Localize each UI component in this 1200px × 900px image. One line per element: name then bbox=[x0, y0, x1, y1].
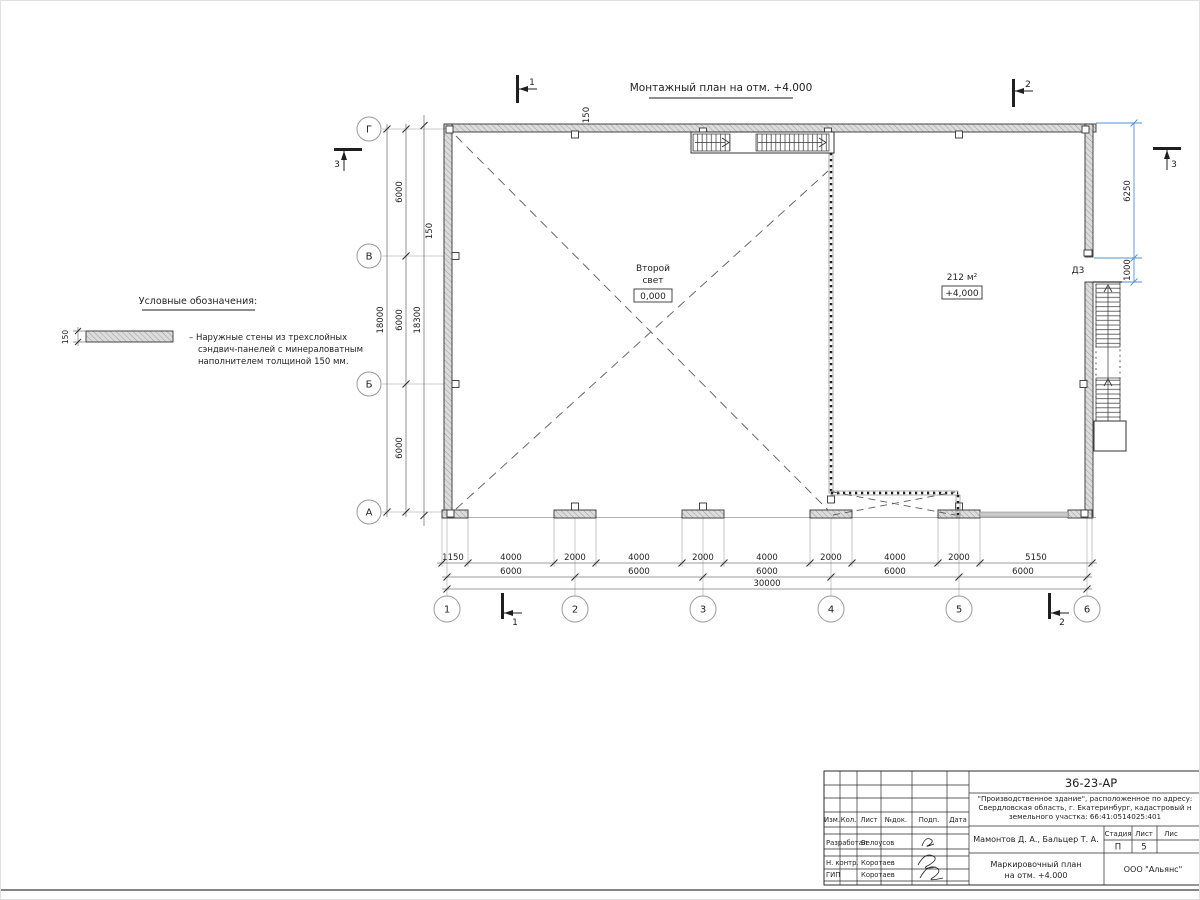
tb-role: Н. контр. bbox=[826, 859, 859, 867]
dim-label: 2000 bbox=[564, 553, 586, 563]
legend: Условные обозначения: 150 – Наружные сте… bbox=[61, 296, 363, 367]
axis-row-label: Г bbox=[366, 125, 372, 136]
dim-label-total: 30000 bbox=[753, 579, 780, 589]
tb-name: Коротаев bbox=[861, 871, 895, 879]
axis-bubbles bbox=[357, 117, 1100, 622]
tb-authors: Мамонтов Д. А., Бальцер Т. А. bbox=[973, 835, 1098, 844]
dim-label: 4000 bbox=[884, 553, 906, 563]
dim-label-total: 18000 bbox=[376, 306, 386, 333]
axis-col-label: 2 bbox=[572, 605, 578, 616]
dim-label: 6000 bbox=[395, 309, 405, 331]
dim-label-blue: 1000 bbox=[1123, 259, 1133, 281]
tb-sheet-value: 5 bbox=[1141, 843, 1146, 853]
axis-col-label: 4 bbox=[828, 605, 834, 616]
void-cross bbox=[456, 136, 828, 510]
axis-row-label: В bbox=[366, 252, 373, 263]
wall-top bbox=[444, 124, 1096, 132]
dim-label: 2000 bbox=[948, 553, 970, 563]
tb-address: Свердловская область, г. Екатеринбург, к… bbox=[978, 803, 1191, 812]
blue-dimension bbox=[1094, 120, 1142, 286]
legend-line: сэндвич-панелей с минераловатным bbox=[198, 345, 363, 355]
section-number: 1 bbox=[512, 618, 518, 628]
tb-drawing-title: на отм. +4.000 bbox=[1005, 871, 1068, 880]
annotations: Монтажный план на отм. +4.000 Второй све… bbox=[630, 82, 1085, 302]
dim-label: 5150 bbox=[1025, 553, 1047, 563]
tb-name: Коротаев bbox=[861, 859, 895, 867]
wall-bottom-pier bbox=[442, 510, 468, 518]
section-marks: 1 2 1 2 3 3 bbox=[334, 75, 1181, 628]
section-number: 3 bbox=[1171, 160, 1177, 170]
door-label: Д3 bbox=[1072, 266, 1085, 276]
tb-address: "Производственное здание", расположенное… bbox=[978, 794, 1193, 803]
wall-thickness-label: 150 bbox=[582, 107, 592, 123]
axis-labels: Г В Б А 1 2 3 4 5 6 bbox=[366, 125, 1091, 616]
walls bbox=[442, 124, 1096, 518]
dim-label: 2000 bbox=[820, 553, 842, 563]
tb-header-col: Лист bbox=[860, 816, 877, 824]
section-number: 2 bbox=[1059, 618, 1065, 628]
opening-cross bbox=[833, 492, 955, 515]
dim-label: 4000 bbox=[500, 553, 522, 563]
stair-landing bbox=[1094, 421, 1126, 451]
room-left-label: Второй bbox=[636, 264, 670, 274]
tb-stage-header: Лис bbox=[1164, 830, 1178, 838]
dim-label: 6000 bbox=[756, 567, 778, 577]
axis-row-label: А bbox=[366, 508, 373, 519]
wall-left bbox=[444, 124, 452, 518]
section-number: 3 bbox=[334, 160, 340, 170]
mezzanine-walls bbox=[829, 153, 960, 517]
dimension-ticks bbox=[384, 122, 1096, 593]
wall-bottom-pier bbox=[554, 510, 596, 518]
axis-col-label: 1 bbox=[444, 605, 450, 616]
legend-line: наполнителем толщиной 150 мм. bbox=[198, 357, 349, 367]
dim-label: 1150 bbox=[442, 553, 464, 563]
axis-col-label: 3 bbox=[700, 605, 706, 616]
wall-right-lower bbox=[1085, 282, 1093, 518]
dim-label: 4000 bbox=[756, 553, 778, 563]
tb-header-col: №док. bbox=[884, 816, 907, 824]
drawing-sheet: Г В Б А 1 2 3 4 5 6 1150 4000 2000 4000 … bbox=[0, 0, 1200, 900]
axis-col-label: 5 bbox=[956, 605, 962, 616]
tb-drawing-title: Маркировочный план bbox=[991, 860, 1082, 869]
wall-bottom-band bbox=[980, 512, 1068, 517]
dimension-lines bbox=[387, 115, 1097, 589]
title-block: Изм. Кол. Лист №док. Подп. Дата Разработ… bbox=[824, 771, 1200, 885]
tb-company: ООО "Альянс" bbox=[1124, 865, 1183, 874]
room-right-level: +4,000 bbox=[945, 289, 979, 299]
stair-right bbox=[1093, 282, 1126, 451]
tb-header-col: Дата bbox=[949, 816, 967, 824]
tb-header-col: Подп. bbox=[919, 816, 940, 824]
legend-line: – Наружные стены из трехслойных bbox=[189, 333, 347, 343]
legend-wall-symbol bbox=[86, 331, 173, 342]
tb-stage-header: Стадия bbox=[1105, 830, 1132, 838]
wall-thickness-label: 150 bbox=[425, 223, 435, 239]
axis-col-label: 6 bbox=[1084, 605, 1090, 616]
tb-signatures bbox=[918, 839, 943, 880]
plan-canvas: Г В Б А 1 2 3 4 5 6 1150 4000 2000 4000 … bbox=[1, 1, 1200, 900]
dim-label: 4000 bbox=[628, 553, 650, 563]
wall-bottom-pier bbox=[682, 510, 724, 518]
tb-address: земельного участка: 66:41:0514025:401 bbox=[1009, 812, 1161, 821]
wall-end-cap bbox=[1084, 250, 1092, 256]
dim-label: 6000 bbox=[395, 181, 405, 203]
room-right-area: 212 м² bbox=[947, 273, 978, 283]
tb-stage-header: Лист bbox=[1135, 830, 1153, 838]
section-number: 2 bbox=[1025, 80, 1031, 90]
room-left-label: свет bbox=[642, 276, 663, 286]
tb-stage-value: П bbox=[1115, 843, 1121, 853]
tb-header-col: Изм. bbox=[824, 816, 840, 824]
dim-label: 6000 bbox=[395, 437, 405, 459]
dim-label: 6000 bbox=[500, 567, 522, 577]
tb-doc-number: 36-23-АР bbox=[1065, 776, 1117, 790]
tb-header-col: Кол. bbox=[841, 816, 857, 824]
stair-top bbox=[691, 132, 834, 153]
dim-label: 2000 bbox=[692, 553, 714, 563]
wall-right-upper bbox=[1085, 124, 1093, 257]
columns bbox=[446, 126, 1092, 517]
section-number: 1 bbox=[529, 78, 535, 88]
axis-row-label: Б bbox=[366, 380, 373, 391]
dim-label: 6000 bbox=[1012, 567, 1034, 577]
wall-bottom-pier bbox=[810, 510, 852, 518]
dim-label: 6000 bbox=[628, 567, 650, 577]
grid-extension-lines bbox=[382, 129, 1092, 596]
legend-thickness: 150 bbox=[61, 330, 70, 345]
tb-name: Белоусов bbox=[861, 839, 894, 847]
dim-label-blue: 6250 bbox=[1123, 180, 1133, 202]
plan-title: Монтажный план на отм. +4.000 bbox=[630, 82, 813, 94]
dim-label-total: 18300 bbox=[413, 306, 423, 333]
room-left-level: 0,000 bbox=[640, 292, 666, 302]
legend-title: Условные обозначения: bbox=[139, 296, 257, 307]
dim-label: 6000 bbox=[884, 567, 906, 577]
tb-role: ГИП bbox=[826, 871, 840, 879]
